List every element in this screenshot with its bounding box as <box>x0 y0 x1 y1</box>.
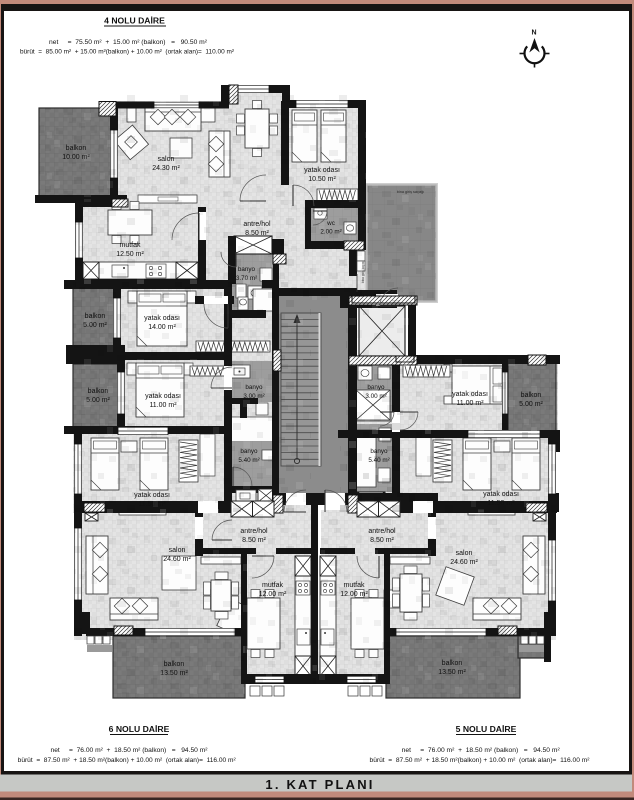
svg-text:5 NOLU DAİRE: 5 NOLU DAİRE <box>456 724 517 734</box>
svg-text:net = 76.00 m² + 18.50: net = 76.00 m² + 18.50 m² (balkon) = 94.… <box>402 747 560 754</box>
svg-text:1. KAT PLANI: 1. KAT PLANI <box>265 777 374 792</box>
svg-text:net = 75.50 m² + 15.00: net = 75.50 m² + 15.00 m² (balkon) = 90.… <box>49 39 207 46</box>
svg-text:bürüt = 87.50 m² + 18.50 m²: bürüt = 87.50 m² + 18.50 m²(balkon) + 10… <box>18 757 236 764</box>
svg-text:6 NOLU DAİRE: 6 NOLU DAİRE <box>109 724 170 734</box>
svg-text:N: N <box>531 30 536 37</box>
svg-text:bürüt = 87.50 m² + 18.50 m²: bürüt = 87.50 m² + 18.50 m²(balkon) + 10… <box>370 757 590 764</box>
svg-text:4 NOLU DAİRE: 4 NOLU DAİRE <box>104 16 165 26</box>
svg-text:net = 76.00 m² + 18.50: net = 76.00 m² + 18.50 m² (balkon) = 94.… <box>51 747 208 754</box>
svg-text:bürüt = 85.00 m² + 15.00 m²: bürüt = 85.00 m² + 15.00 m²(balkon) + 10… <box>20 49 234 56</box>
